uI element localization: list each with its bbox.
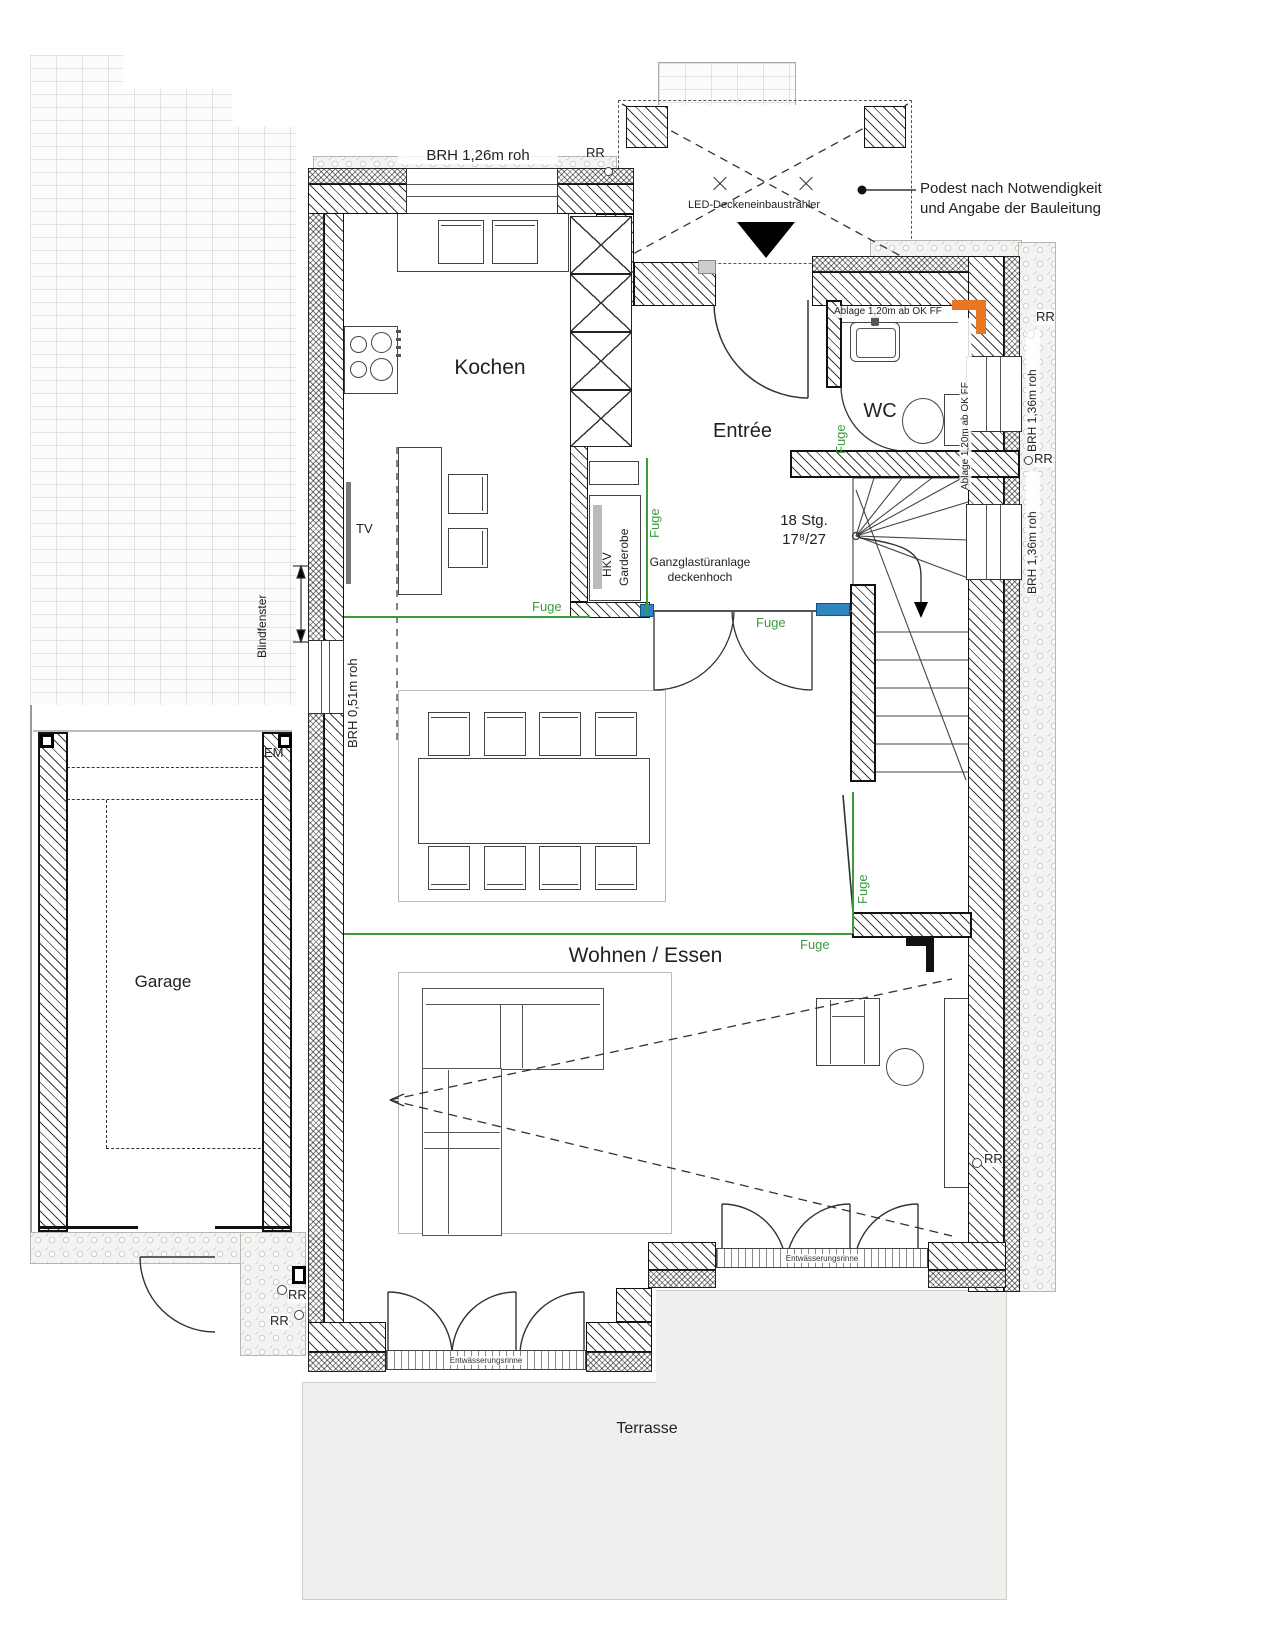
wall-niche-west	[570, 445, 588, 602]
rainpipe-icon	[1024, 456, 1033, 465]
wall-west-outer	[308, 168, 324, 1372]
vent-duct-marker	[976, 308, 986, 334]
wall-step-detail	[906, 938, 934, 946]
window-label-right-lower: BRH 1,36m roh	[1026, 472, 1040, 594]
drainage-channel-southwest: Entwässerungsrinne	[386, 1350, 586, 1370]
downpipe-marker	[292, 1266, 306, 1284]
room-label-living: Wohnen / Essen	[558, 944, 733, 968]
wc-shelf-label-right: Ablage 1,20m ab OK FF	[960, 318, 972, 490]
fuge-joint-line	[344, 616, 590, 618]
led-spotlight-label: LED-Deckeneinbaustrahler	[688, 199, 820, 212]
tall-cabinet	[570, 274, 632, 332]
room-label-entree: Entrée	[695, 420, 790, 443]
rainpipe-icon	[604, 167, 613, 176]
em-label: EM	[264, 746, 284, 761]
floor-plan: Entwässerungsrinne Entwässerungsrinne BR…	[0, 0, 1280, 1652]
garderobe-label: Garderobe	[618, 478, 632, 586]
podest-note-line2: und Angabe der Bauleitung	[920, 200, 1101, 217]
garage-south-wall-line	[38, 1226, 138, 1229]
fuge-label: Fuge	[532, 600, 562, 615]
fuge-label: Fuge	[856, 852, 871, 904]
fuge-label: Fuge	[834, 402, 849, 454]
wall-west	[324, 168, 344, 1372]
window-label-right-upper: BRH 1,36m roh	[1026, 330, 1040, 452]
west-window	[308, 640, 344, 714]
rainpipe-icon	[972, 1158, 982, 1168]
rr-label: RR	[984, 1152, 1003, 1167]
garage-south-wall-line	[215, 1226, 292, 1229]
folding-door-southwest	[388, 1292, 584, 1352]
entrance-arrow-icon	[737, 222, 795, 258]
wall-southeast-right-outer	[928, 1270, 1006, 1288]
fuge-label: Fuge	[800, 938, 830, 953]
garage-wall-east	[262, 732, 292, 1232]
kitchen-window	[406, 168, 558, 214]
stair-bottom-wall-stub	[852, 912, 972, 938]
garage-corner-detail	[40, 734, 54, 748]
entry-door-swing	[714, 300, 808, 398]
drainage-channel-southeast: Entwässerungsrinne	[716, 1248, 928, 1268]
tall-cabinet	[570, 332, 632, 390]
door-threshold-mat	[698, 260, 716, 274]
drainage-channel-label: Entwässerungsrinne	[784, 1254, 860, 1263]
tall-cabinet	[570, 390, 632, 447]
stairs-label-line1: 18 Stg.	[758, 512, 850, 529]
window-label-top: BRH 1,26m roh	[398, 147, 558, 164]
ceiling-spotlight-icon	[712, 176, 728, 192]
wc-shelf-label: Ablage 1,20m ab OK FF	[834, 306, 942, 318]
tall-cabinet	[570, 216, 632, 274]
rr-label: RR	[288, 1288, 307, 1303]
ceiling-spotlight-icon	[798, 176, 814, 192]
east-window-upper	[966, 356, 1022, 432]
wall-southeast-left-outer	[648, 1270, 716, 1288]
glass-door-label-line1: Ganzglastüranlage	[640, 556, 760, 570]
rr-label: RR	[270, 1314, 289, 1329]
rr-label: RR	[1034, 452, 1053, 467]
east-window-lower	[966, 504, 1022, 580]
tv-label: TV	[356, 522, 373, 537]
hkv-label: HKV	[601, 515, 615, 577]
window-label-left: BRH 0,51m roh	[346, 598, 361, 748]
blind-window-label: Blindfenster	[256, 554, 270, 658]
wall-wc-stairs	[790, 450, 1020, 478]
wall-south-step	[616, 1288, 652, 1322]
garage-top-edge	[33, 730, 292, 732]
wall-southwest-outer	[308, 1352, 386, 1372]
room-label-garage: Garage	[108, 972, 218, 992]
fuge-joint-line	[852, 792, 854, 934]
wall-step-detail	[926, 946, 934, 972]
wall-southeast-right	[928, 1242, 1006, 1270]
plan-linework	[0, 0, 1280, 1652]
wall-south-mid	[586, 1322, 652, 1352]
stairs-label-line2: 17⁸/27	[758, 531, 850, 548]
leader-line	[858, 186, 917, 195]
podest-column	[864, 106, 906, 148]
rr-label: RR	[586, 146, 605, 161]
garage-door-swing	[140, 1257, 215, 1332]
room-label-kitchen: Kochen	[430, 356, 550, 380]
rainpipe-icon	[294, 1310, 304, 1320]
glass-double-door-swing	[654, 610, 812, 690]
wall-southeast-left	[648, 1242, 716, 1270]
garage-wall-west	[38, 732, 68, 1232]
rainpipe-icon	[277, 1285, 287, 1295]
rr-label: RR	[1036, 310, 1055, 325]
blind-window-dimension	[293, 566, 309, 642]
fuge-joint-line	[344, 933, 852, 935]
wall-southwest	[308, 1322, 386, 1352]
glass-door-post	[816, 603, 850, 616]
room-label-wc: WC	[852, 400, 908, 423]
drainage-channel-label: Entwässerungsrinne	[448, 1356, 524, 1365]
fuge-label: Fuge	[648, 488, 663, 538]
wall-south-mid-outer	[586, 1352, 652, 1372]
podest-note-line1: Podest nach Notwendigkeit	[920, 180, 1102, 197]
room-label-terrasse: Terrasse	[592, 1420, 702, 1438]
stair-newel-wall	[850, 584, 876, 782]
sight-lines	[390, 979, 952, 1236]
fuge-label: Fuge	[756, 616, 786, 631]
podest-column	[626, 106, 668, 148]
glass-door-label-line2: deckenhoch	[640, 571, 760, 585]
